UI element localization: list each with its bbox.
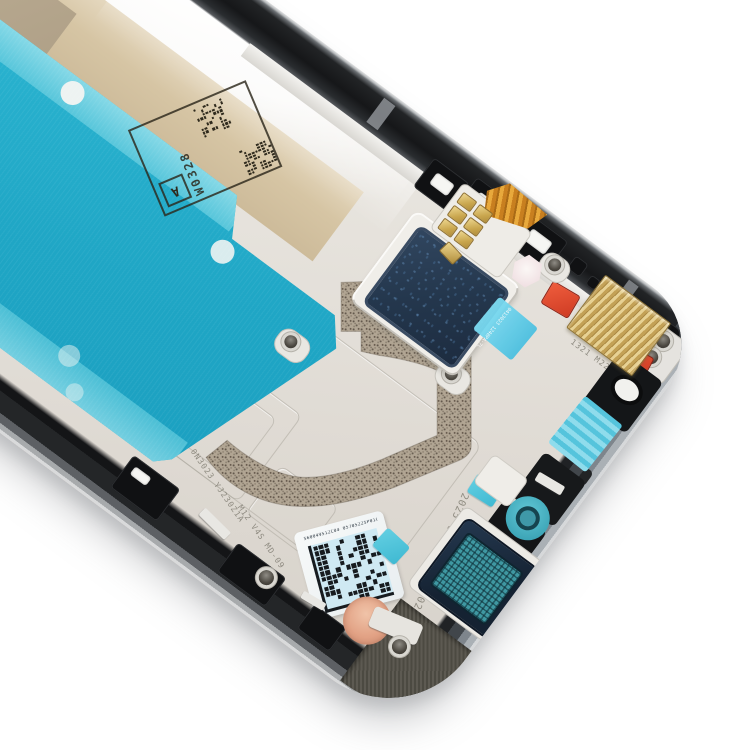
stamp-letter: A <box>169 182 182 199</box>
product-photo: { "scene": { "description": "Product pho… <box>0 0 750 750</box>
phone-mid-frame: A W0328 560049512C04 05705225P01C-2 2 20… <box>0 0 710 736</box>
button-hole <box>429 172 455 196</box>
stamp-qr-code <box>193 98 232 137</box>
frame-slot <box>130 466 152 486</box>
metal-sliver <box>534 472 565 496</box>
stamp-qr-code <box>239 139 279 175</box>
